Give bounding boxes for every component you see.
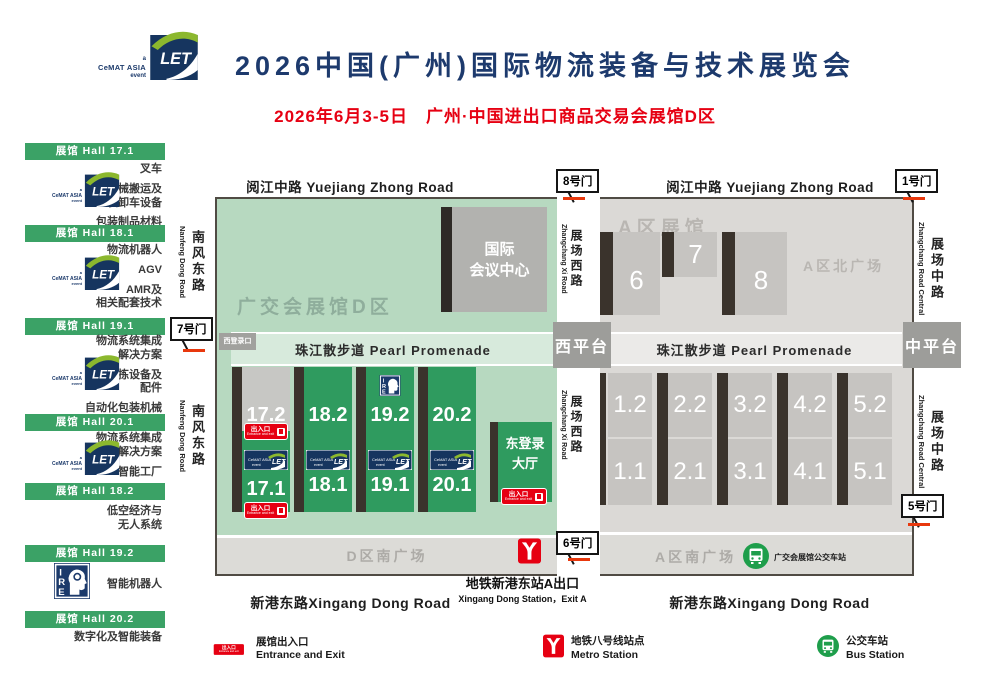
svg-text:CeMAT ASIA: CeMAT ASIA — [248, 457, 272, 462]
list-item: 智能机器人 — [107, 578, 162, 592]
west-platform: 西平台 — [553, 322, 611, 368]
list-item: 低空经济与 无人系统 — [107, 505, 162, 533]
hall-20: 20.2 CeMAT ASIAeventLET 20.1 — [428, 367, 476, 512]
door-icon — [277, 507, 285, 515]
hall-strip — [490, 422, 498, 502]
pearl-promenade-a: 珠江散步道 Pearl Promenade — [607, 332, 902, 366]
let-logo-icon: aCeMAT ASIAevent LET — [52, 353, 120, 391]
sidebar-hall-18-2-header: 展馆 Hall 18.2 — [25, 483, 165, 500]
hall-3-2: 3.2 — [728, 373, 772, 437]
hall-strip — [600, 232, 613, 315]
bus-station-icon — [817, 635, 839, 662]
hall-8: 8 — [735, 232, 787, 315]
a-south-plaza: A区南广场 广交会展馆公交车站 — [600, 532, 912, 574]
legend-bus: 公交车站 Bus Station — [817, 635, 904, 662]
hall-17-1: CeMAT ASIAeventLET 17.1 — [242, 431, 290, 512]
svg-text:LET: LET — [334, 459, 348, 466]
hall-2-2: 2.2 — [668, 373, 712, 437]
hall-strip — [837, 373, 848, 505]
entrance-exit-badge: 出入口Entrance and exit — [244, 502, 288, 519]
entrance-exit-badge: 出入口Entrance and exit — [501, 488, 547, 505]
d-zone-label: 广交会展馆D区 — [237, 292, 407, 319]
metro-icon — [543, 634, 564, 663]
svg-text:event: event — [376, 463, 385, 467]
gate-5-marker — [908, 523, 930, 526]
sidebar-hall-19-1-header: 展馆 Hall 19.1 — [25, 318, 165, 335]
hall-strip — [777, 373, 788, 505]
convention-center-strip — [441, 207, 452, 312]
let-logo-icon: aCeMAT ASIAevent LET — [52, 253, 120, 291]
hall-4-1: 4.1 — [788, 439, 832, 505]
bus-station-label: 广交会展馆公交车站 — [774, 552, 846, 563]
d-zone-map: 广交会展馆D区 国际 会议中心 西登录口 珠江散步道 Pearl Promena… — [215, 197, 557, 576]
let-logo-icon: aCeMAT ASIAevent LET — [52, 438, 120, 476]
central-platform: 中平台 — [903, 322, 961, 368]
road-zhangchang-central-upper: 展场中路 Zhangchang Road Central — [917, 210, 946, 328]
let-logo-icon: aCeMAT ASIAevent LET — [52, 170, 120, 208]
sidebar-hall-17-1-header: 展馆 Hall 17.1 — [25, 143, 165, 160]
list-item: 数字化及智能装备 — [74, 631, 162, 645]
hall-19: IRE 19.2 CeMAT ASIAeventLET 19.1 — [366, 367, 414, 512]
svg-text:LET: LET — [92, 268, 115, 281]
brand-event: event — [130, 73, 146, 81]
let-badge-icon: CeMAT ASIAeventLET — [430, 450, 474, 475]
svg-text:LET: LET — [92, 185, 115, 198]
sidebar-hall-18-2-items: 低空经济与 无人系统 — [25, 505, 162, 533]
a-north-plaza: A区北广场 — [803, 256, 884, 276]
metro-exit-label: 地铁新港东站A出口 Xingang Dong Station，Exit A — [440, 573, 605, 605]
brand-a: a — [143, 56, 146, 64]
hall-18: 18.2 CeMAT ASIAeventLET 18.1 — [304, 367, 352, 512]
hall-6: 6 — [613, 232, 660, 315]
page-subtitle: 2026年6月3-5日 广州·中国进出口商品交易会展馆D区 — [150, 102, 840, 127]
hall-5-1: 5.1 — [848, 439, 892, 505]
pearl-promenade-d: 珠江散步道 Pearl Promenade — [231, 332, 555, 366]
hall-1-1: 1.1 — [608, 439, 652, 505]
sidebar-hall-20-2-items: 数字化及智能装备 — [25, 631, 162, 645]
legend-metro: 地铁八号线站点 Metro Station — [543, 634, 645, 663]
gate-6: 6号门 — [556, 531, 599, 555]
entrance-exit-badge: 出入口Entrance and exit — [244, 423, 288, 440]
list-item: 叉车 — [140, 163, 162, 177]
hall-strip — [662, 232, 674, 277]
hall-strip — [657, 373, 668, 505]
ire-logo-icon: I R E — [54, 562, 90, 605]
road-zhangchang-xi-upper: 展场西路 Zhangchang Xi Road — [560, 205, 585, 313]
svg-text:LET: LET — [396, 459, 410, 466]
entrance-exit-badge-icon: 出入口Entrance and exit — [213, 643, 245, 655]
hall-7: 7 — [674, 232, 717, 277]
sidebar-hall-20-2-header: 展馆 Hall 20.2 — [25, 611, 165, 628]
brand-cemat: CeMAT ASIA — [98, 63, 146, 72]
gate-8-marker — [563, 197, 585, 200]
hall-1-2: 1.2 — [608, 373, 652, 437]
gate-7-marker — [183, 349, 205, 352]
sidebar-hall-19-2-header: 展馆 Hall 19.2 — [25, 545, 165, 562]
svg-text:LET: LET — [92, 453, 115, 466]
let-badge-icon: CeMAT ASIAeventLET — [368, 450, 412, 475]
hall-17-2: 17.2 — [242, 367, 290, 431]
gate-7: 7号门 — [170, 317, 213, 341]
gate-8: 8号门 — [556, 169, 599, 193]
gate-5: 5号门 — [901, 494, 944, 518]
bus-station-icon — [743, 543, 769, 574]
let-badge-icon: CeMAT ASIAeventLET — [244, 450, 288, 475]
road-zhangchang-xi-lower: 展场西路 Zhangchang Xi Road — [560, 375, 585, 475]
road-yuejiang-east: 阅江中路 Yuejiang Zhong Road — [655, 176, 885, 196]
legend-entrance: 出入口Entrance and exit 展馆出入口 Entrance and … — [213, 636, 345, 662]
svg-text:CeMAT ASIA: CeMAT ASIA — [310, 457, 334, 462]
road-nanfeng-lower: 南风东路 Nanfeng Dong Road — [178, 386, 207, 486]
venue-map-page: a CeMAT ASIA event LET 2026中国(广州)国际物流装备与… — [0, 0, 1002, 691]
sidebar-hall-19-2-items: 智能机器人 — [25, 578, 162, 592]
hall-3-1: 3.1 — [728, 439, 772, 505]
hall-5-2: 5.2 — [848, 373, 892, 437]
let-badge-icon: CeMAT ASIAeventLET — [306, 450, 350, 475]
gate-6-marker — [568, 558, 590, 561]
gate-1: 1号门 — [895, 169, 938, 193]
road-yuejiang-west: 阅江中路 Yuejiang Zhong Road — [240, 176, 460, 196]
hall-strip — [600, 373, 606, 505]
sidebar-hall-20-1-header: 展馆 Hall 20.1 — [25, 414, 165, 431]
svg-text:LET: LET — [92, 368, 115, 381]
svg-text:LET: LET — [458, 459, 472, 466]
svg-text:event: event — [252, 463, 261, 467]
list-item: AGV — [138, 264, 162, 278]
hall-4-2: 4.2 — [788, 373, 832, 437]
road-xingang-west: 新港东路Xingang Dong Road — [243, 593, 458, 613]
cemat-asia-wordmark: a CeMAT ASIA event — [98, 56, 146, 87]
svg-text:event: event — [314, 463, 323, 467]
road-nanfeng-upper: 南风东路 Nanfeng Dong Road — [178, 212, 207, 312]
convention-center: 国际 会议中心 — [452, 207, 547, 312]
hall-strip — [418, 367, 428, 512]
sidebar-hall-18-1-header: 展馆 Hall 18.1 — [25, 225, 165, 242]
page-title: 2026中国(广州)国际物流装备与技术展览会 — [185, 44, 905, 83]
ire-badge-icon: IRE — [379, 375, 401, 401]
hall-strip — [356, 367, 366, 512]
road-xingang-east: 新港东路Xingang Dong Road — [657, 593, 882, 613]
metro-icon — [518, 538, 541, 569]
west-login-entrance: 西登录口 — [219, 333, 256, 350]
svg-text:CeMAT ASIA: CeMAT ASIA — [434, 457, 458, 462]
d-south-plaza: D区南广场 — [217, 535, 557, 574]
list-item: 智能工厂 — [118, 466, 162, 480]
hall-strip — [232, 367, 242, 512]
hall-2-1: 2.1 — [668, 439, 712, 505]
door-icon — [535, 493, 543, 501]
gate-1-marker — [903, 197, 925, 200]
hall-strip — [722, 232, 735, 315]
road-zhangchang-central-lower: 展场中路 Zhangchang Road Central — [917, 383, 946, 501]
door-icon — [277, 428, 285, 436]
cemat-let-logo: a CeMAT ASIA event LET — [98, 28, 199, 87]
svg-text:CeMAT ASIA: CeMAT ASIA — [372, 457, 396, 462]
hall-strip — [294, 367, 304, 512]
svg-text:LET: LET — [272, 459, 286, 466]
a-zone-map: A区展馆 6 7 8 A区北广场 珠江散步道 Pearl Promenade 1… — [600, 197, 914, 576]
svg-text:E: E — [58, 587, 64, 598]
hall-strip — [717, 373, 728, 505]
svg-text:event: event — [438, 463, 447, 467]
svg-text:E: E — [382, 390, 386, 396]
